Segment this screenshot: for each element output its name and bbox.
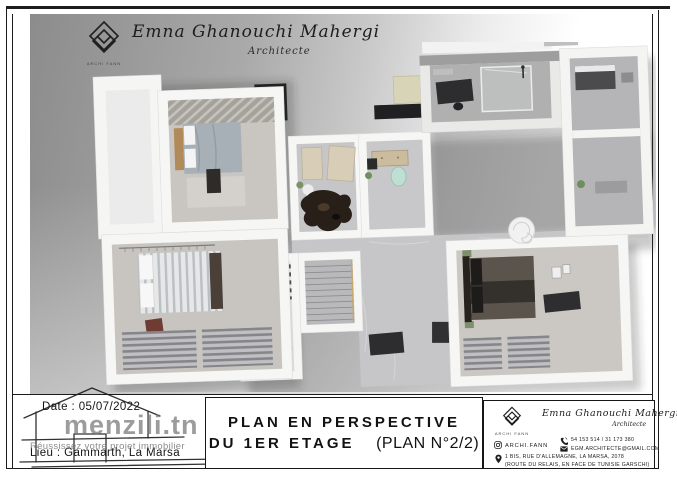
rooms-far-right [559, 46, 654, 237]
card-logo-caption: ARCHI FANN [490, 431, 534, 436]
phone-number: 54 153 514 / 31 173 380 [571, 437, 634, 445]
plan-title-line2-suffix: (PLAN N°2/2) [376, 435, 479, 452]
watermark-site: menzili.tn [64, 410, 199, 441]
plan-title-line1: PLAN EN PERSPECTIVE [228, 414, 460, 431]
floor-plan-3d-render [58, 42, 656, 392]
round-ceiling-object [508, 217, 535, 244]
watermark-tagline: Réussissez votre projet immobilier [30, 441, 185, 452]
render-backdrop: ARCHI FANN Emna Ghanouchi Mahergi Archit… [30, 14, 652, 394]
location-pin-icon [495, 454, 502, 464]
phone-row: 54 153 514 / 31 173 380 [560, 437, 634, 445]
address-text: 1 BIS, RUE D'ALLEMAGNE, LA MARSA, 2078 (… [505, 454, 650, 470]
room-bedroom-bottom-left [101, 228, 292, 384]
frame-right-outer-line [658, 10, 659, 469]
card-architect-title: Architecte [612, 420, 646, 428]
frame-left-inner-line [12, 14, 13, 469]
address-line1: 1 BIS, RUE D'ALLEMAGNE, LA MARSA, 2078 [505, 454, 650, 462]
instagram-row: ARCHI.FANN [494, 441, 548, 451]
title-block: PLAN EN PERSPECTIVE DU 1ER ETAGE (PLAN N… [205, 397, 483, 469]
roof-black-band [374, 104, 422, 120]
address-line2: (ROUTE DU RELAIS, EN FACE DE TUNISIE GAR… [505, 462, 650, 470]
card-diamond-logo-icon [498, 405, 526, 431]
roof-chimney [544, 42, 578, 46]
instagram-handle: ARCHI.FANN [505, 442, 548, 451]
wardrobe-yellow [393, 76, 421, 104]
phone-icon [560, 437, 568, 445]
room-hall [358, 131, 434, 237]
presentation-board: ARCHI FANN Emna Ghanouchi Mahergi Archit… [0, 0, 677, 478]
staircase [296, 251, 363, 333]
room-living [288, 134, 366, 241]
card-signature: Emna Ghanouchi Mahergi [542, 408, 677, 419]
plan-title-line2: DU 1ER ETAGE (PLAN N°2/2) [209, 435, 479, 453]
room-terrace [93, 75, 167, 239]
address-row: 1 BIS, RUE D'ALLEMAGNE, LA MARSA, 2078 (… [495, 454, 650, 470]
frame-top-line [6, 6, 670, 9]
room-bedroom-top-left [157, 86, 288, 232]
business-card: ARCHI FANN Emna Ghanouchi Mahergi Archit… [483, 400, 655, 469]
email-address: EGM.ARCHITECTE@GMAIL.COM [571, 446, 660, 454]
email-row: EGM.ARCHITECTE@GMAIL.COM [560, 446, 660, 454]
room-office-bath [419, 51, 562, 133]
room-bedroom-bottom-right [446, 235, 633, 387]
email-icon [560, 446, 568, 452]
plan-title-line2-main: DU 1ER ETAGE [209, 435, 355, 452]
frame-left-outer-line [6, 6, 7, 469]
architect-signature: Emna Ghanouchi Mahergi [132, 22, 380, 42]
instagram-icon [494, 441, 502, 449]
